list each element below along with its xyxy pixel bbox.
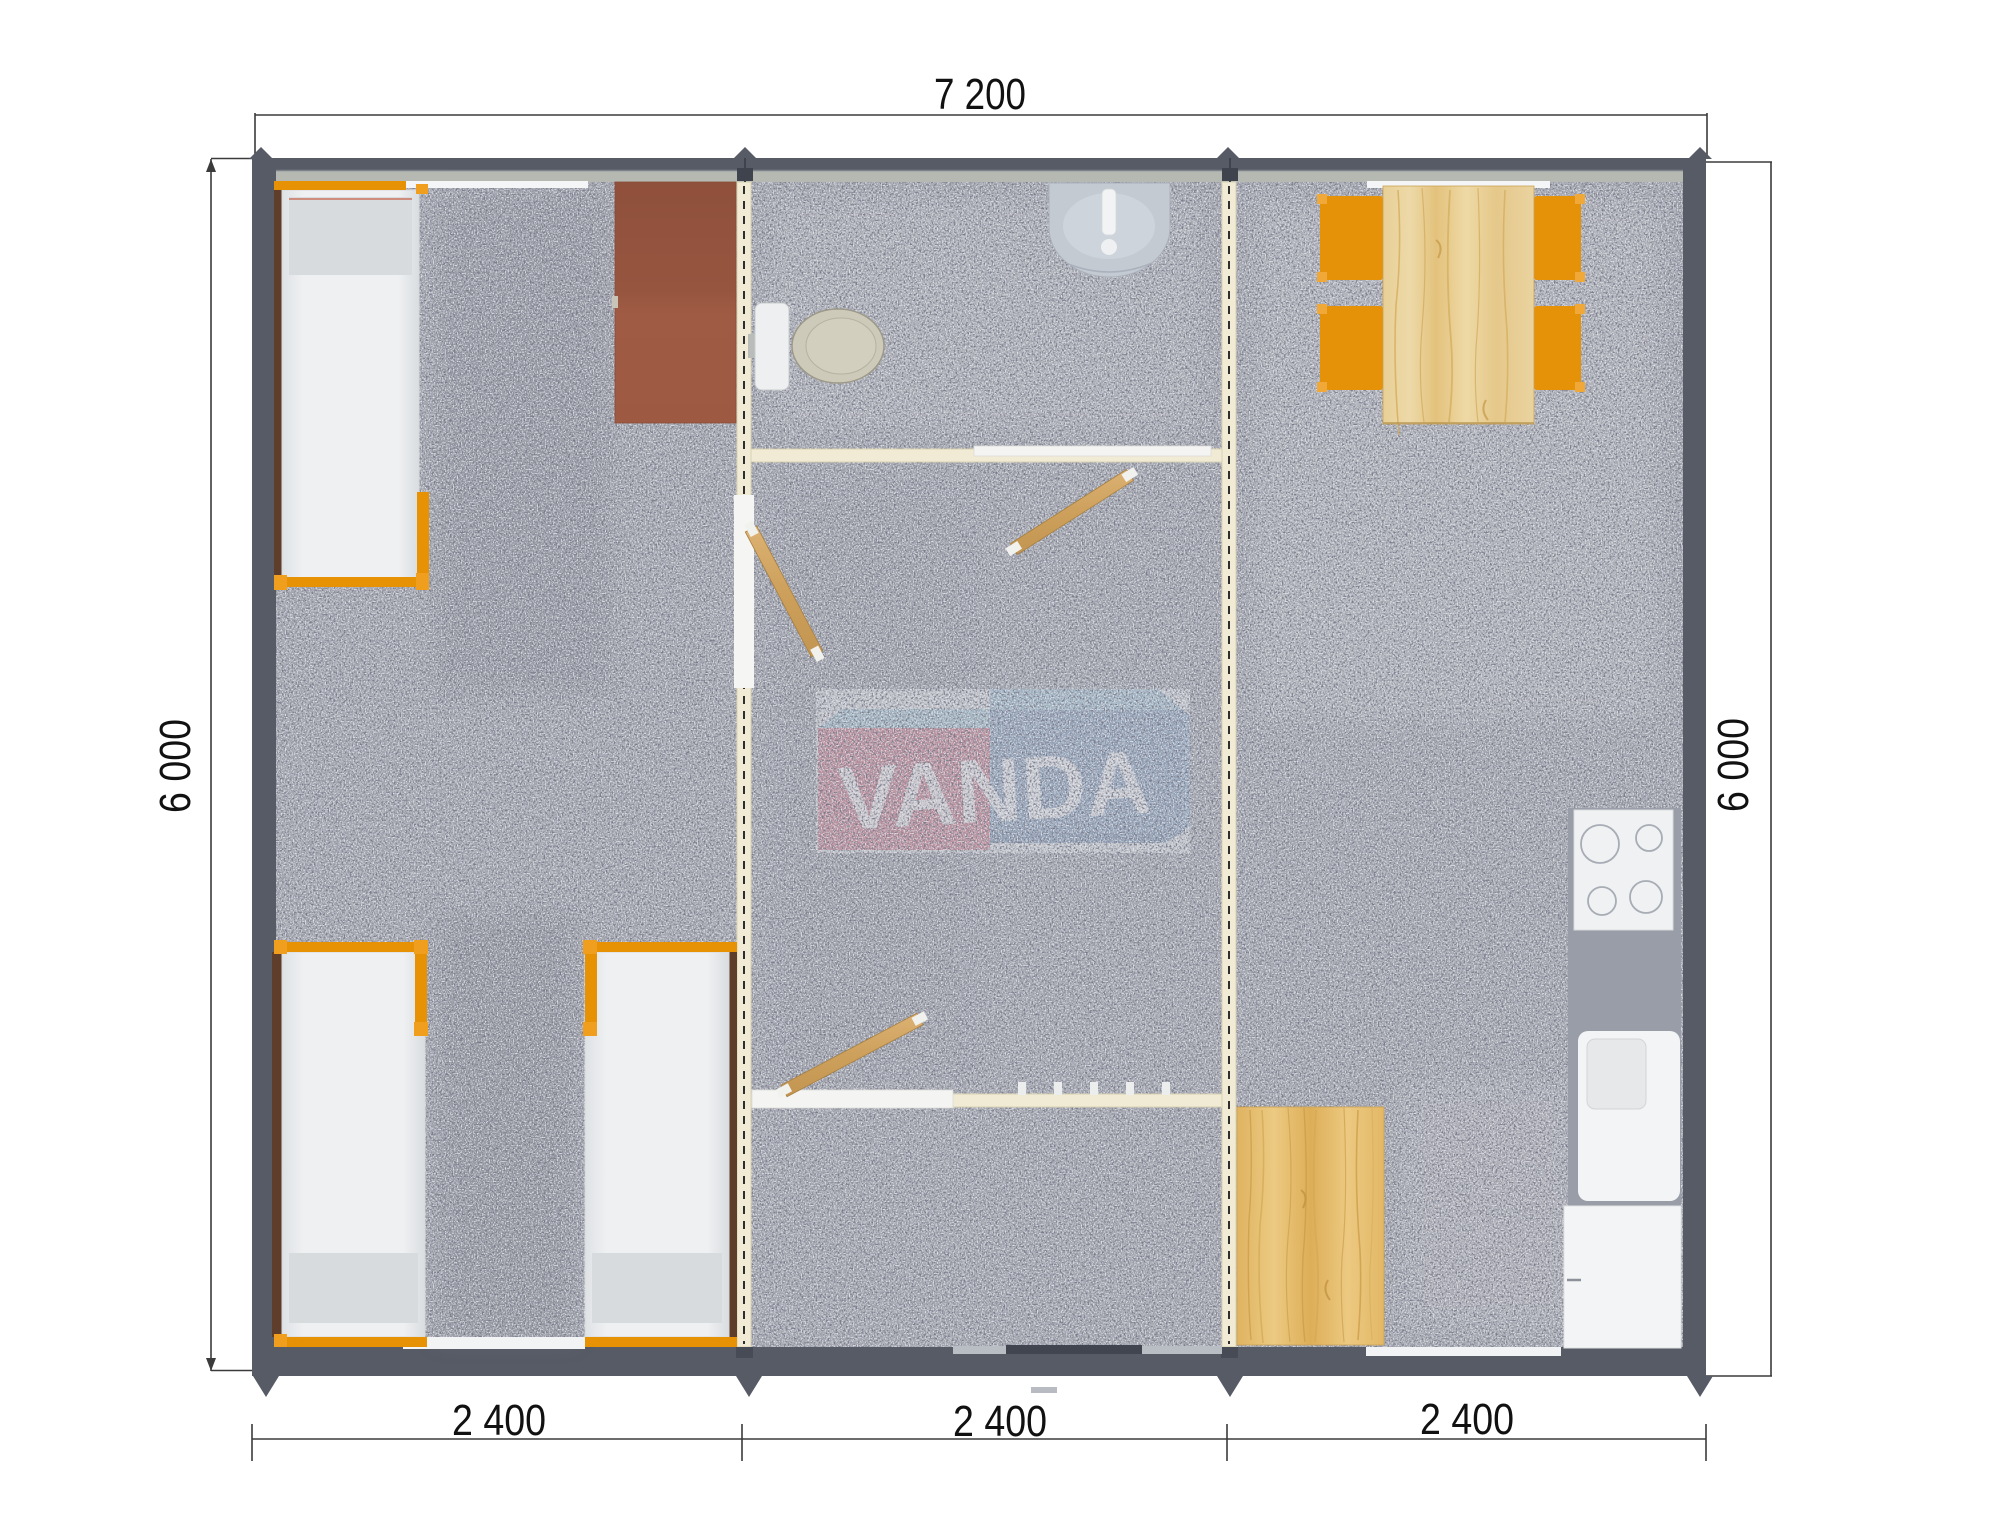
svg-text:6 000: 6 000 xyxy=(151,719,200,813)
svg-text:2 400: 2 400 xyxy=(953,1397,1047,1446)
svg-text:7 200: 7 200 xyxy=(934,70,1026,119)
svg-text:6 000: 6 000 xyxy=(1709,718,1758,812)
svg-text:2 400: 2 400 xyxy=(452,1396,546,1445)
svg-text:2 400: 2 400 xyxy=(1420,1395,1514,1444)
